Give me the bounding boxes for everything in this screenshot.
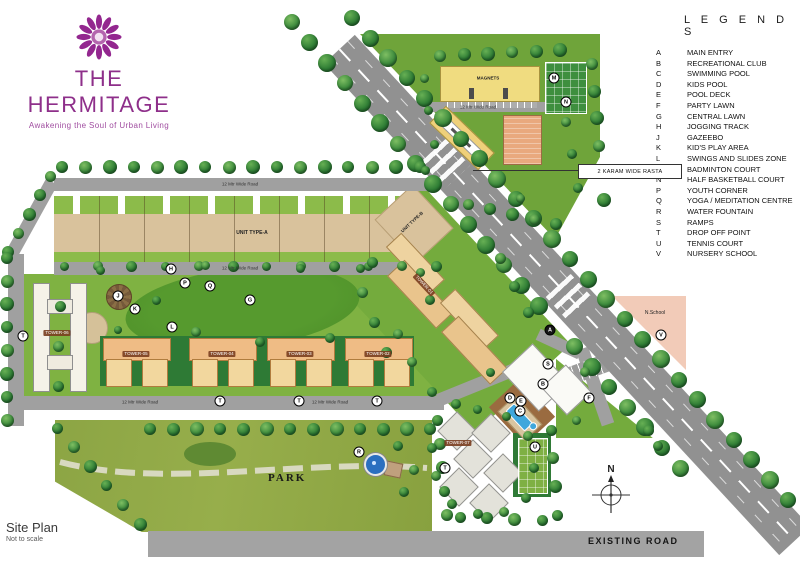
tree-icon: [573, 183, 583, 193]
tree-icon: [144, 423, 156, 435]
legend-key: K: [648, 143, 687, 154]
tree-icon: [424, 106, 433, 115]
plot-separator: [99, 196, 100, 264]
pink-building: [503, 115, 542, 165]
tower-wing: [270, 359, 296, 387]
tree-icon: [284, 14, 300, 30]
tree-icon: [214, 423, 226, 435]
tree-icon: [23, 208, 36, 221]
legend-label: POOL DECK: [687, 90, 800, 101]
tree-icon: [689, 391, 706, 408]
tree-icon: [761, 471, 779, 489]
tree-icon: [223, 161, 236, 174]
legend-label: GAZEEBO: [687, 133, 800, 144]
tree-icon: [473, 509, 483, 519]
legend-item: GCENTRAL LAWN: [648, 112, 800, 123]
brand-block: THE HERMITAGE Awakening the Soul of Urba…: [4, 14, 194, 130]
tree-icon: [543, 230, 561, 248]
tree-icon: [318, 160, 332, 174]
legend-label: RAMPS: [687, 218, 800, 229]
legend-item: UTENNIS COURT: [648, 239, 800, 250]
plot-separator: [279, 196, 280, 264]
tree-icon: [430, 140, 439, 149]
brand-tagline: Awakening the Soul of Urban Living: [4, 121, 194, 130]
tree-icon: [190, 422, 204, 436]
tree-icon: [260, 422, 274, 436]
map-marker-A: A: [545, 325, 556, 336]
tower-label: TOWER-04: [208, 351, 235, 357]
legend-key: Q: [648, 196, 687, 207]
map-marker-R: R: [354, 447, 365, 458]
tree-icon: [60, 262, 69, 271]
tower-wing: [142, 359, 168, 387]
map-marker-E: E: [516, 396, 527, 407]
tree-icon: [79, 161, 92, 174]
tree-icon: [362, 30, 379, 47]
tree-icon: [1, 391, 13, 403]
tree-icon: [128, 161, 140, 173]
tree-icon: [284, 423, 296, 435]
legend-label: KIDS POOL: [687, 80, 800, 91]
tree-icon: [530, 45, 543, 58]
orange-tower: [189, 338, 255, 386]
tree-icon: [529, 214, 540, 225]
legend-item: CSWIMMING POOL: [648, 69, 800, 80]
tree-icon: [45, 171, 56, 182]
tower-wing: [192, 359, 218, 387]
site-plan-page: THE HERMITAGE Awakening the Soul of Urba…: [0, 0, 800, 588]
tree-icon: [549, 480, 562, 493]
orange-tower: [103, 338, 169, 386]
map-marker-K: K: [130, 304, 141, 315]
tower-wing: [348, 359, 374, 387]
legend-item: HJOGGING TRACK: [648, 122, 800, 133]
road-width-label: 12 Mtr Wide Road: [222, 182, 258, 187]
tree-icon: [451, 399, 461, 409]
road-width-label: 12 Mtr Wide Road: [312, 400, 348, 405]
tree-icon: [471, 150, 488, 167]
tower-06-link: [47, 355, 73, 370]
legend-item: FPARTY LAWN: [648, 101, 800, 112]
tree-icon: [597, 290, 615, 308]
tree-icon: [460, 216, 477, 233]
tree-icon: [246, 160, 260, 174]
tower-wing: [106, 359, 132, 387]
legends-title: L E G E N D S: [684, 14, 800, 38]
tree-icon: [509, 281, 520, 292]
site-plan-scale-note: Not to scale: [6, 536, 58, 543]
tower-wing: [228, 359, 254, 387]
map-marker-T: T: [215, 396, 226, 407]
tree-icon: [354, 423, 366, 435]
tower-label: TOWER-03: [286, 351, 313, 357]
tree-icon: [307, 423, 320, 436]
map-marker-L: L: [167, 322, 178, 333]
legend-key: C: [648, 69, 687, 80]
tower-wing: [306, 359, 332, 387]
legend-key: T: [648, 228, 687, 239]
tree-icon: [590, 111, 604, 125]
tree-icon: [617, 311, 633, 327]
compass-rose-icon: [588, 475, 634, 515]
tree-icon: [0, 367, 14, 381]
tree-icon: [389, 160, 403, 174]
tree-icon: [453, 131, 469, 147]
tree-icon: [407, 357, 417, 367]
tree-icon: [296, 264, 305, 273]
compass: N: [588, 464, 634, 516]
map-marker-N: N: [561, 97, 572, 108]
tree-icon: [601, 379, 617, 395]
tree-icon: [567, 149, 577, 159]
tree-icon: [325, 333, 335, 343]
shops-entrance: [503, 88, 508, 99]
tree-icon: [84, 460, 97, 473]
unit-type-a-label: UNIT TYPE-A: [236, 230, 267, 236]
legend-key: B: [648, 59, 687, 70]
legend-label: TENNIS COURT: [687, 239, 800, 250]
tree-icon: [390, 136, 406, 152]
map-marker-D: D: [505, 393, 516, 404]
legend-label: HALF BASKETBALL COURT: [687, 175, 800, 186]
tree-icon: [481, 512, 493, 524]
legends-panel: L E G E N D S AMAIN ENTRYBRECREATIONAL C…: [648, 14, 800, 260]
tree-icon: [337, 75, 353, 91]
tree-icon: [134, 518, 147, 531]
tree-icon: [201, 261, 210, 270]
tree-icon: [354, 95, 371, 112]
tree-icon: [151, 161, 164, 174]
tree-icon: [53, 341, 64, 352]
tower-wing: [384, 359, 410, 387]
tower-top-slab: [345, 338, 413, 361]
legend-key: J: [648, 133, 687, 144]
legend-label: JOGGING TRACK: [687, 122, 800, 133]
tree-icon: [393, 441, 403, 451]
legend-item: KKID'S PLAY AREA: [648, 143, 800, 154]
tree-icon: [167, 423, 180, 436]
karam-rasta-leader: [473, 170, 578, 171]
tree-icon: [1, 252, 13, 264]
tree-icon: [619, 399, 636, 416]
shops-building: [440, 66, 540, 102]
legend-key: P: [648, 186, 687, 197]
tower-label: TOWER-02: [364, 351, 391, 357]
legend-label: MAIN ENTRY: [687, 48, 800, 59]
map-marker-C: C: [515, 406, 526, 417]
tree-icon: [409, 465, 419, 475]
map-marker-T: T: [18, 331, 29, 342]
map-marker-S: S: [543, 359, 554, 370]
legend-label: RECREATIONAL CLUB: [687, 59, 800, 70]
plot-separator: [369, 196, 370, 264]
tree-icon: [357, 287, 368, 298]
tree-icon: [552, 510, 563, 521]
tree-icon: [580, 367, 590, 377]
legend-label: SWINGS AND SLIDES ZONE: [687, 154, 800, 165]
map-marker-V: V: [656, 330, 667, 341]
fountain-center: [372, 461, 376, 465]
tree-icon: [424, 175, 442, 193]
shops-entrance: [469, 88, 474, 99]
legend-key: A: [648, 48, 687, 59]
legend-key: V: [648, 249, 687, 260]
tree-icon: [477, 236, 495, 254]
tree-icon: [441, 509, 453, 521]
tree-icon: [481, 47, 495, 61]
tree-icon: [400, 422, 414, 436]
legend-label: DROP OFF POINT: [687, 228, 800, 239]
tree-icon: [473, 405, 482, 414]
tree-icon: [262, 262, 271, 271]
tree-icon: [671, 372, 687, 388]
plot-separator: [234, 196, 235, 264]
legend-item: RWATER FOUNTAIN: [648, 207, 800, 218]
tree-icon: [580, 271, 597, 288]
tree-icon: [344, 10, 360, 26]
tower-06-cluster: [33, 283, 85, 390]
legend-item: EPOOL DECK: [648, 90, 800, 101]
legend-key: H: [648, 122, 687, 133]
tree-icon: [294, 161, 307, 174]
tree-icon: [55, 301, 66, 312]
tree-icon: [653, 441, 663, 451]
tree-icon: [13, 228, 24, 239]
tree-icon: [743, 451, 760, 468]
tree-icon: [597, 193, 611, 207]
tree-icon: [427, 387, 437, 397]
tree-icon: [199, 161, 211, 173]
tree-icon: [634, 331, 651, 348]
legend-item: VNURSERY SCHOOL: [648, 249, 800, 260]
tree-icon: [593, 140, 605, 152]
tree-icon: [53, 381, 64, 392]
tree-icon: [588, 85, 601, 98]
map-marker-Q: Q: [205, 281, 216, 292]
tree-icon: [550, 218, 562, 230]
tree-icon: [34, 189, 46, 201]
map-marker-T: T: [440, 463, 451, 474]
tree-icon: [126, 261, 137, 272]
map-marker-U: U: [530, 442, 541, 453]
tree-icon: [369, 317, 380, 328]
tree-icon: [237, 423, 250, 436]
legend-item: JGAZEEBO: [648, 133, 800, 144]
tree-icon: [643, 425, 654, 436]
tree-icon: [152, 296, 161, 305]
tree-icon: [318, 54, 336, 72]
tree-icon: [572, 416, 581, 425]
tree-icon: [439, 486, 450, 497]
legend-key: U: [648, 239, 687, 250]
tree-icon: [56, 161, 68, 173]
tree-icon: [529, 463, 539, 473]
map-marker-J: J: [113, 291, 124, 302]
tree-icon: [174, 160, 188, 174]
tree-icon: [547, 452, 559, 464]
tree-icon: [455, 512, 466, 523]
tree-icon: [68, 441, 80, 453]
tree-icon: [399, 487, 409, 497]
legend-label: PARTY LAWN: [687, 101, 800, 112]
tree-icon: [1, 344, 14, 357]
tree-icon: [463, 199, 474, 210]
legend-item: TDROP OFF POINT: [648, 228, 800, 239]
tree-icon: [367, 257, 378, 268]
tree-icon: [329, 261, 340, 272]
legend-label: WATER FOUNTAIN: [687, 207, 800, 218]
site-plan-title: Site Plan: [6, 520, 58, 535]
legend-item: PYOUTH CORNER: [648, 186, 800, 197]
tree-icon: [561, 117, 571, 127]
plots-block: [54, 196, 414, 264]
orange-tower: [345, 338, 411, 386]
tree-icon: [488, 170, 506, 188]
tree-icon: [537, 515, 548, 526]
plot-separator: [189, 196, 190, 264]
water-fountain: [364, 453, 387, 476]
shops-label: MAGNETS: [477, 76, 500, 81]
tree-icon: [330, 422, 344, 436]
tree-icon: [523, 431, 533, 441]
map-marker-M: M: [549, 73, 560, 84]
tree-icon: [271, 161, 283, 173]
karam-rasta-label: 2 KARAM WIDE RASTA: [578, 164, 682, 179]
legend-key: F: [648, 101, 687, 112]
tree-icon: [1, 414, 14, 427]
legend-key: L: [648, 154, 687, 165]
map-marker-B: B: [538, 379, 549, 390]
tree-icon: [255, 337, 265, 347]
tree-icon: [1, 275, 14, 288]
tree-icon: [553, 43, 567, 57]
tree-icon: [506, 208, 519, 221]
tower-top-slab: [189, 338, 257, 361]
map-marker-T: T: [294, 396, 305, 407]
tower-label: TOWER-05: [122, 351, 149, 357]
legends-list: AMAIN ENTRYBRECREATIONAL CLUBCSWIMMING P…: [648, 48, 800, 260]
tree-icon: [458, 48, 471, 61]
legend-key: S: [648, 218, 687, 229]
legend-key: R: [648, 207, 687, 218]
tree-icon: [495, 253, 506, 264]
tree-icon: [706, 411, 724, 429]
tree-icon: [499, 507, 509, 517]
site-plan-caption: Site Plan Not to scale: [6, 520, 58, 543]
lotus-ornament-icon: [76, 14, 122, 60]
tree-icon: [52, 423, 63, 434]
nursery-school-label: N.School: [645, 310, 665, 316]
tree-icon: [342, 161, 354, 173]
tree-icon: [447, 499, 457, 509]
legend-label: KID'S PLAY AREA: [687, 143, 800, 154]
legend-key: E: [648, 90, 687, 101]
tree-icon: [780, 492, 796, 508]
legend-item: DKIDS POOL: [648, 80, 800, 91]
tower-label: TOWER-06: [43, 330, 70, 336]
orange-tower: [267, 338, 333, 386]
legend-label: SWIMMING POOL: [687, 69, 800, 80]
plot-separator: [324, 196, 325, 264]
tree-icon: [566, 338, 583, 355]
tree-icon: [431, 471, 441, 481]
tree-icon: [393, 329, 403, 339]
road-width-label: 12 Mtr Wide Road: [222, 266, 258, 271]
tree-icon: [431, 261, 442, 272]
legend-item: QYOGA / MEDITATION CENTRE: [648, 196, 800, 207]
legend-label: CENTRAL LAWN: [687, 112, 800, 123]
park-area: [55, 420, 432, 532]
map-marker-H: H: [166, 264, 177, 275]
map-marker-F: F: [584, 393, 595, 404]
tree-icon: [672, 460, 689, 477]
tree-icon: [434, 50, 446, 62]
tree-icon: [96, 266, 105, 275]
tree-icon: [508, 513, 521, 526]
tree-icon: [103, 160, 117, 174]
map-marker-T: T: [372, 396, 383, 407]
tree-icon: [427, 443, 437, 453]
park-label: PARK: [268, 472, 306, 484]
compass-n-label: N: [588, 464, 634, 475]
tree-icon: [484, 203, 496, 215]
existing-road-label: EXISTING ROAD: [588, 536, 679, 546]
tree-icon: [523, 307, 534, 318]
tree-icon: [443, 196, 459, 212]
tree-icon: [301, 34, 318, 51]
tree-icon: [652, 350, 670, 368]
tree-icon: [421, 166, 430, 175]
tree-icon: [420, 74, 429, 83]
legend-label: YOGA / MEDITATION CENTRE: [687, 196, 800, 207]
tower-label: TOWER-07: [444, 440, 471, 446]
tree-icon: [191, 327, 201, 337]
park-shrub: [184, 442, 236, 466]
legend-key: G: [648, 112, 687, 123]
legend-item: SRAMPS: [648, 218, 800, 229]
legend-item: LSWINGS AND SLIDES ZONE: [648, 154, 800, 165]
tree-icon: [546, 425, 557, 436]
map-marker-P: P: [180, 278, 191, 289]
legend-label: NURSERY SCHOOL: [687, 249, 800, 260]
legend-label: BADMINTON COURT: [687, 165, 800, 176]
road-width-label: 12 Mtr Wide Road: [122, 400, 158, 405]
tree-icon: [377, 423, 390, 436]
tree-icon: [356, 264, 365, 273]
legend-item: AMAIN ENTRY: [648, 48, 800, 59]
tree-icon: [432, 415, 443, 426]
tree-icon: [726, 432, 742, 448]
tree-icon: [399, 70, 415, 86]
tree-icon: [562, 251, 578, 267]
tree-icon: [486, 368, 495, 377]
tree-icon: [521, 493, 531, 503]
brand-name: THE HERMITAGE: [4, 66, 194, 118]
road-width-label: 12 Mtr Wide Road: [460, 105, 496, 110]
tree-icon: [516, 194, 525, 203]
legend-key: D: [648, 80, 687, 91]
plot-separator: [144, 196, 145, 264]
legend-label: YOUTH CORNER: [687, 186, 800, 197]
tree-icon: [416, 90, 433, 107]
tree-icon: [114, 326, 122, 334]
tree-icon: [366, 161, 379, 174]
map-marker-G: G: [245, 295, 256, 306]
tower-top-slab: [103, 338, 171, 361]
tower-top-slab: [267, 338, 335, 361]
tree-icon: [502, 412, 511, 421]
tree-icon: [586, 58, 598, 70]
